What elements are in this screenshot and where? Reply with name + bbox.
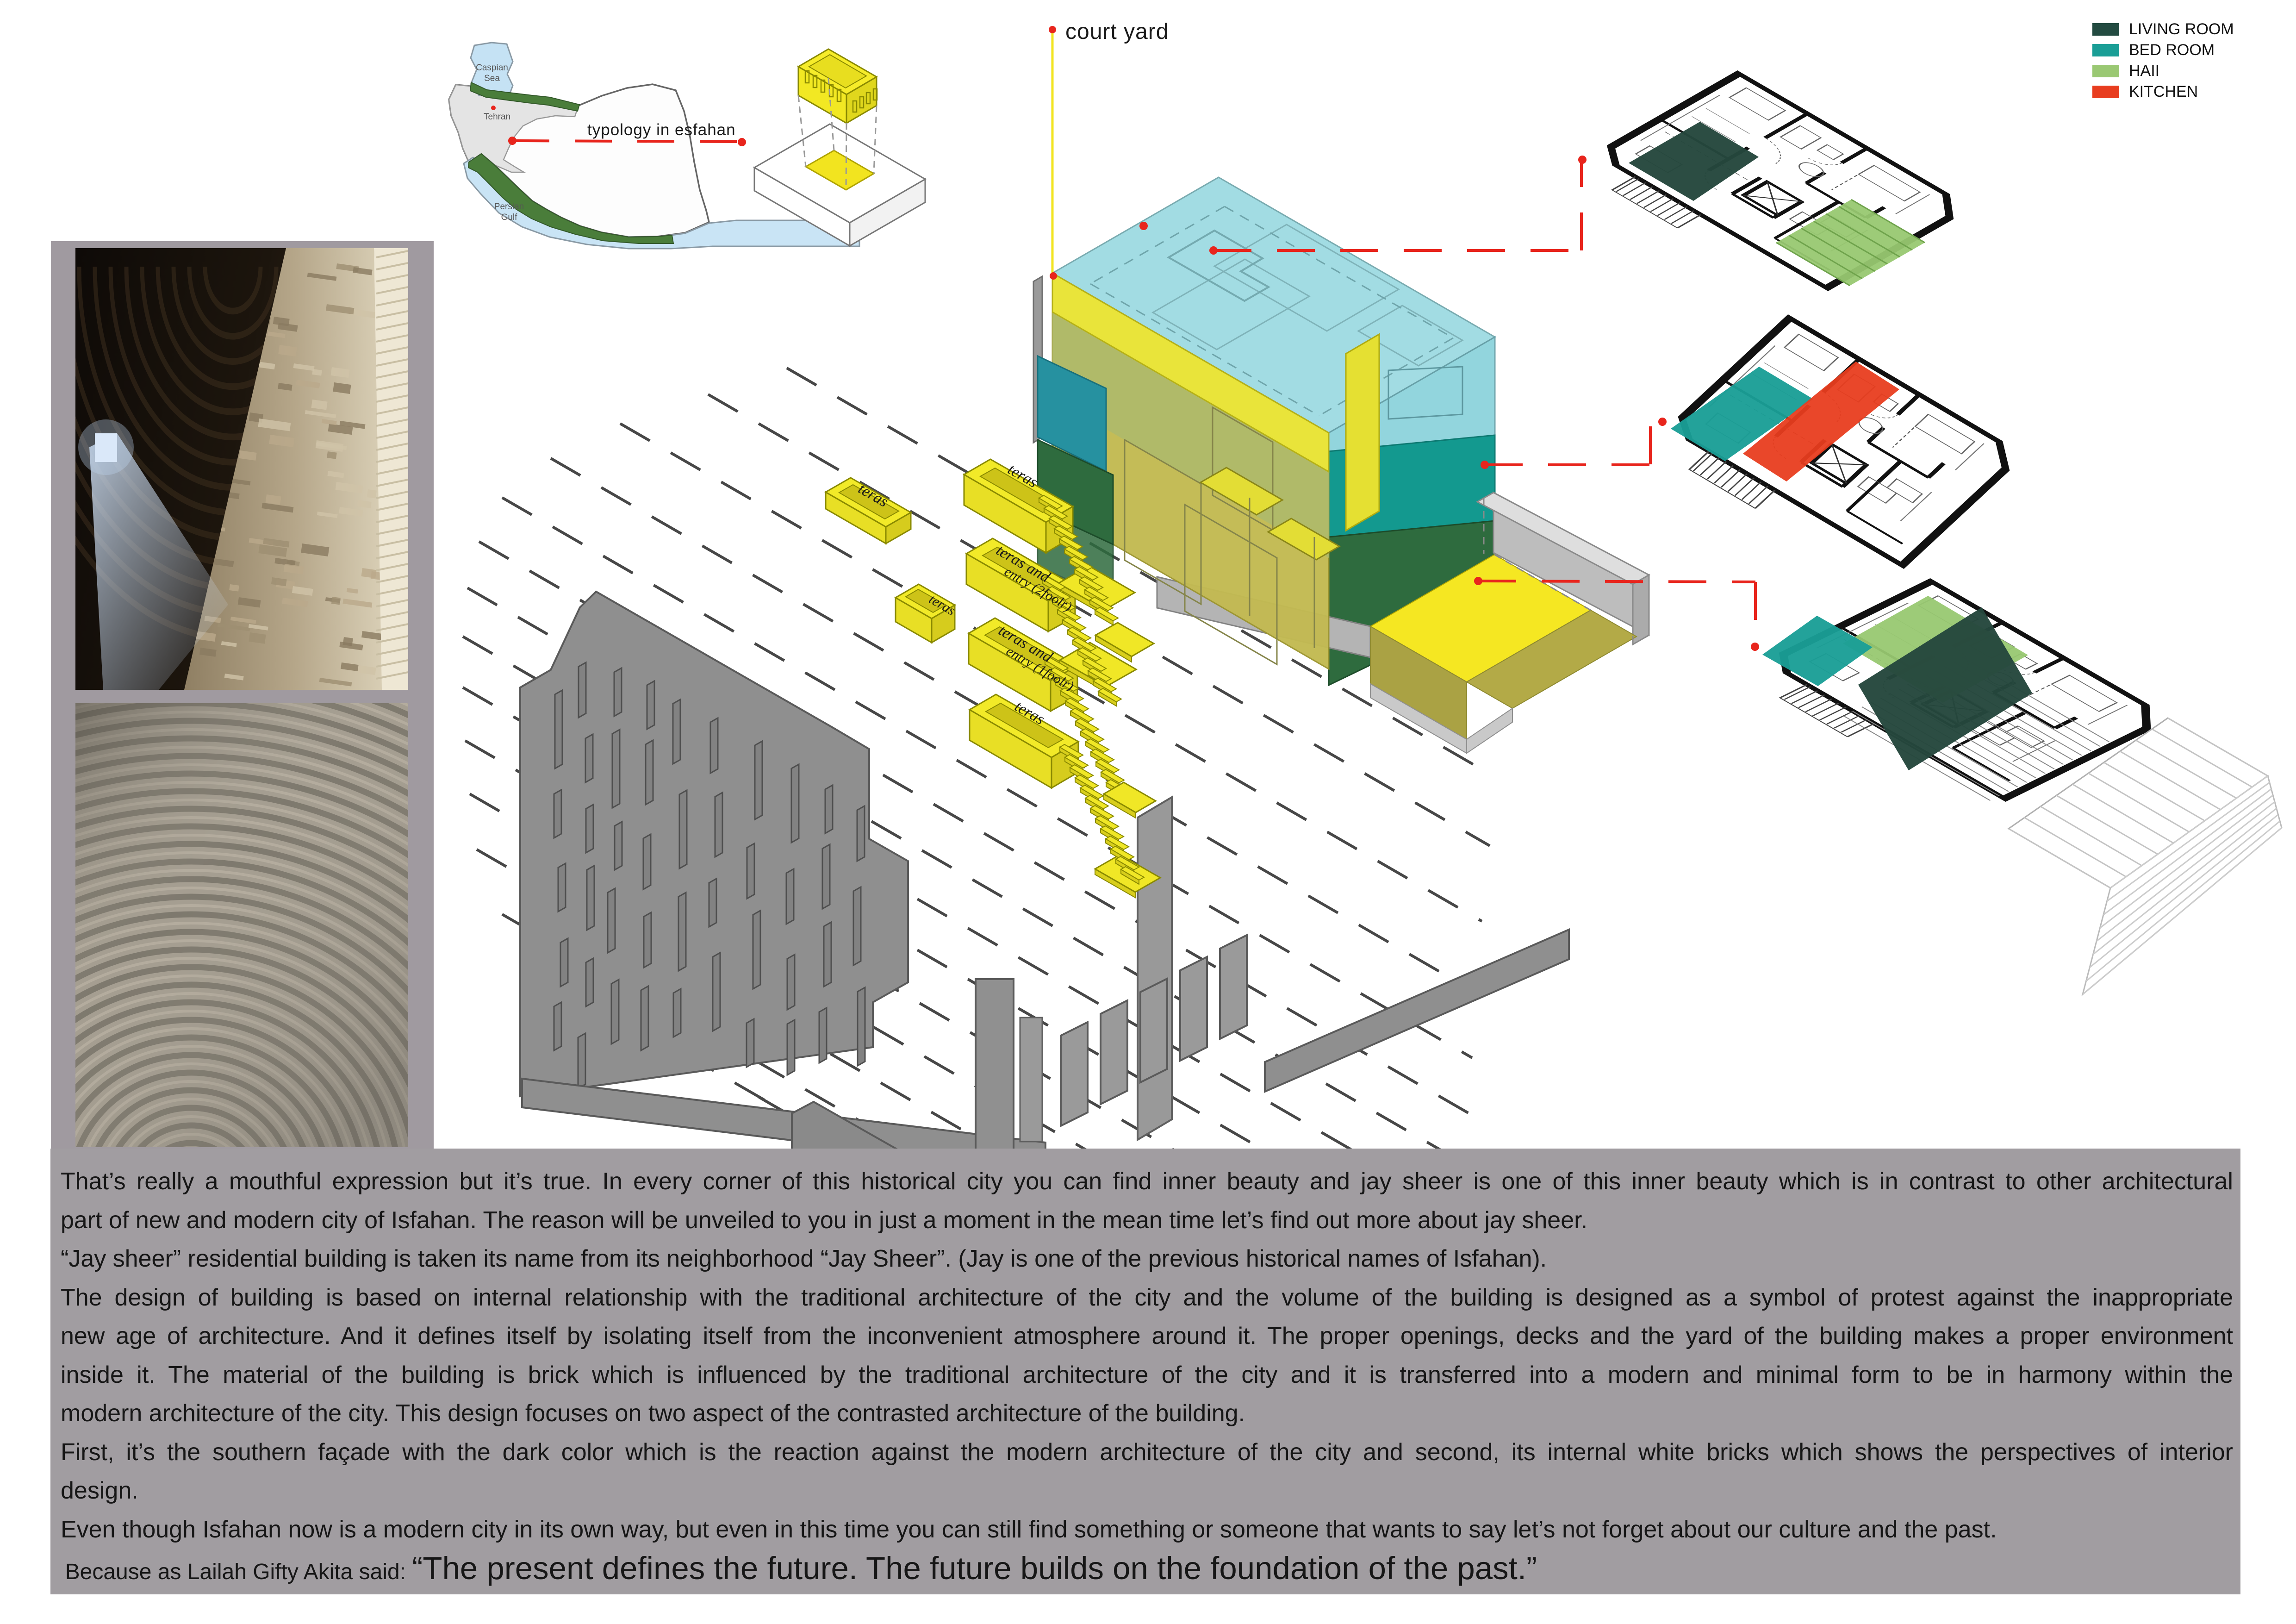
- svg-text:KITCHEN: KITCHEN: [2129, 83, 2198, 100]
- svg-text:BED ROOM: BED ROOM: [2129, 41, 2215, 59]
- svg-text:LIVING ROOM: LIVING ROOM: [2129, 20, 2234, 38]
- svg-text:Gulf: Gulf: [501, 212, 518, 222]
- svg-text:court yard: court yard: [1065, 19, 1169, 44]
- svg-text:Persian: Persian: [494, 202, 524, 212]
- svg-text:typology in esfahan: typology in esfahan: [587, 121, 736, 139]
- svg-text:HAII: HAII: [2129, 62, 2159, 80]
- svg-text:Tehran: Tehran: [484, 112, 510, 122]
- svg-text:Sea: Sea: [484, 74, 500, 83]
- svg-text:Caspian: Caspian: [476, 63, 508, 73]
